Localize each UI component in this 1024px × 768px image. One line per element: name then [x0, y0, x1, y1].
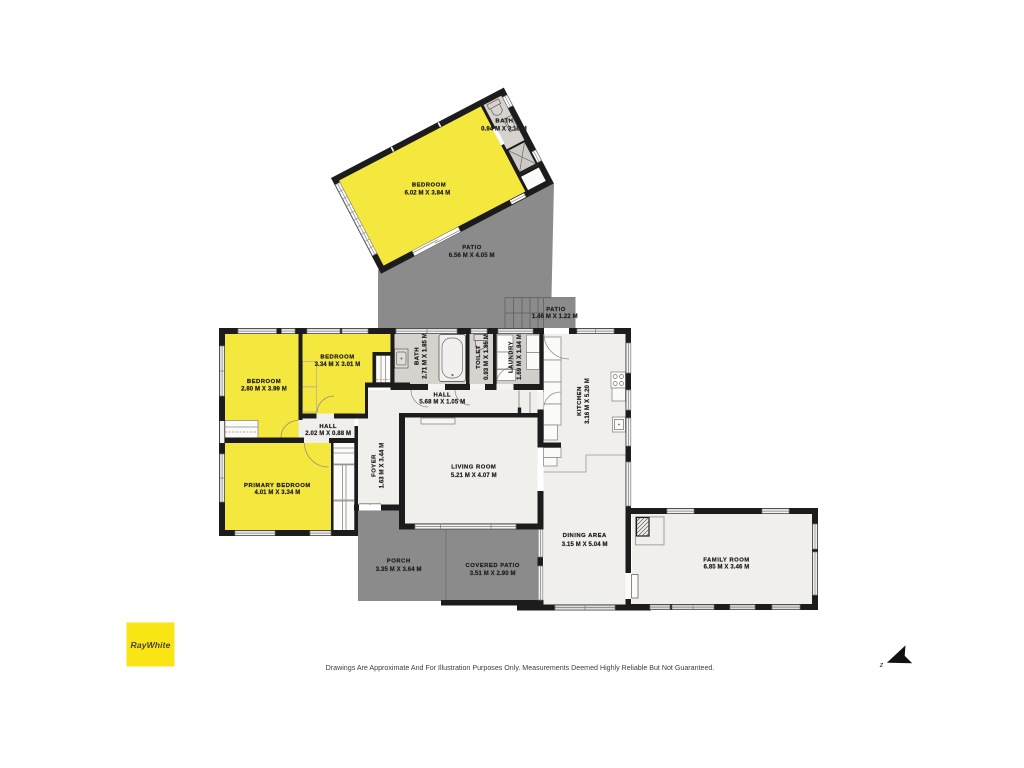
svg-text:PRIMARY BEDROOM: PRIMARY BEDROOM — [244, 483, 311, 489]
svg-text:6.56 M X 4.05 M: 6.56 M X 4.05 M — [449, 253, 495, 259]
svg-text:PATIO: PATIO — [546, 307, 566, 313]
svg-text:0.84 M X 3.10 M: 0.84 M X 3.10 M — [481, 126, 527, 132]
svg-text:HALL: HALL — [319, 424, 337, 430]
svg-text:3.51 M X 2.90 M: 3.51 M X 2.90 M — [470, 571, 516, 577]
svg-text:KITCHEN: KITCHEN — [577, 386, 583, 416]
svg-text:z: z — [879, 662, 884, 669]
svg-text:TOILET: TOILET — [476, 345, 482, 369]
svg-text:PORCH: PORCH — [387, 559, 411, 565]
svg-text:6.85 M X 3.46 M: 6.85 M X 3.46 M — [704, 564, 750, 570]
svg-text:1.63 M X 3.44 M: 1.63 M X 3.44 M — [380, 443, 386, 489]
svg-text:2.71 M X 1.85 M: 2.71 M X 1.85 M — [423, 333, 429, 379]
svg-text:3.35 M X 3.64 M: 3.35 M X 3.64 M — [376, 567, 422, 573]
svg-text:5.68 M X 1.05 M: 5.68 M X 1.05 M — [419, 400, 465, 406]
svg-text:FAMILY ROOM: FAMILY ROOM — [703, 557, 749, 563]
svg-text:3.15 M X 5.04 M: 3.15 M X 5.04 M — [562, 542, 608, 548]
svg-text:FOYER: FOYER — [371, 454, 377, 477]
svg-text:BEDROOM: BEDROOM — [412, 183, 446, 189]
svg-text:4.01 M X 3.34 M: 4.01 M X 3.34 M — [254, 490, 300, 496]
svg-text:0.93 M X 1.85 M: 0.93 M X 1.85 M — [484, 334, 490, 380]
svg-text:2.02 M X 0.88 M: 2.02 M X 0.88 M — [305, 431, 351, 437]
svg-text:1.69 M X 1.84 M: 1.69 M X 1.84 M — [517, 334, 523, 380]
svg-text:RayWhite: RayWhite — [131, 640, 171, 650]
svg-text:BATH: BATH — [414, 347, 420, 365]
svg-text:BEDROOM: BEDROOM — [247, 379, 281, 385]
svg-text:BATH: BATH — [495, 119, 513, 125]
svg-text:BEDROOM: BEDROOM — [320, 354, 354, 360]
svg-text:3.16 M X 5.20 M: 3.16 M X 5.20 M — [585, 378, 591, 424]
svg-text:5.21 M X 4.07 M: 5.21 M X 4.07 M — [451, 473, 497, 479]
svg-text:6.02 M X 3.84 M: 6.02 M X 3.84 M — [405, 190, 451, 196]
svg-text:COVERED PATIO: COVERED PATIO — [465, 563, 519, 569]
svg-text:1.46 M X 1.22 M: 1.46 M X 1.22 M — [532, 314, 578, 320]
svg-text:PATIO: PATIO — [462, 245, 482, 251]
svg-text:LAUNDRY: LAUNDRY — [509, 341, 515, 373]
svg-text:HALL: HALL — [433, 393, 451, 399]
svg-text:Drawings Are Approximate And F: Drawings Are Approximate And For Illustr… — [326, 664, 715, 672]
svg-text:3.34 M X 3.01 M: 3.34 M X 3.01 M — [315, 362, 361, 368]
svg-text:2.80 M X 3.99 M: 2.80 M X 3.99 M — [241, 386, 287, 392]
svg-text:LIVING ROOM: LIVING ROOM — [451, 464, 496, 470]
svg-text:DINING AREA: DINING AREA — [563, 533, 607, 539]
